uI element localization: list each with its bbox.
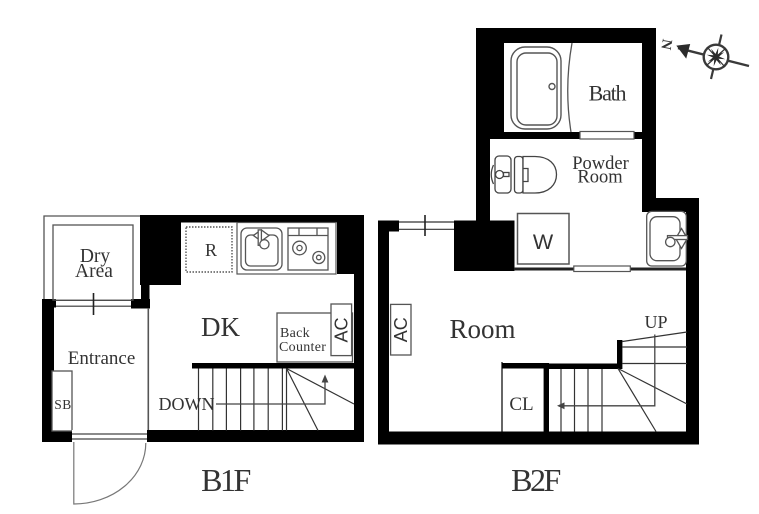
svg-text:W: W <box>533 230 554 254</box>
svg-text:CL: CL <box>509 394 533 415</box>
svg-text:Back: Back <box>280 326 310 341</box>
svg-text:B2F: B2F <box>511 462 560 498</box>
svg-text:DOWN: DOWN <box>159 394 215 414</box>
svg-text:Entrance: Entrance <box>68 348 136 369</box>
svg-text:B1F: B1F <box>201 462 250 498</box>
svg-text:Room: Room <box>449 314 515 344</box>
svg-text:SB: SB <box>54 397 72 412</box>
svg-text:Counter: Counter <box>279 340 326 355</box>
svg-text:Room: Room <box>577 168 623 188</box>
svg-text:AC: AC <box>391 317 411 342</box>
svg-text:AC: AC <box>331 317 351 342</box>
svg-text:R: R <box>205 240 217 260</box>
svg-text:Area: Area <box>75 261 113 282</box>
svg-text:Bath: Bath <box>589 81 627 106</box>
svg-text:UP: UP <box>644 312 667 332</box>
svg-text:DK: DK <box>201 312 240 342</box>
